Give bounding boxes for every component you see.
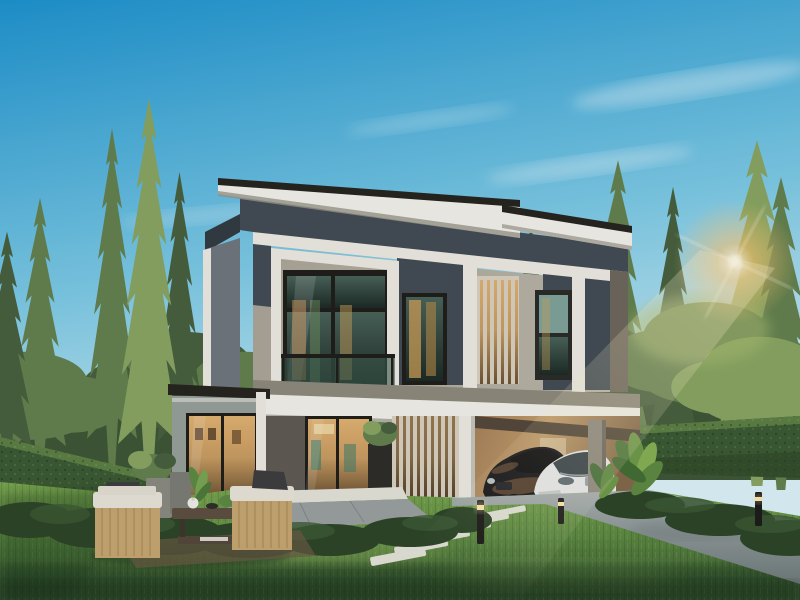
architectural-rendering <box>0 0 800 600</box>
vignette <box>0 0 800 600</box>
